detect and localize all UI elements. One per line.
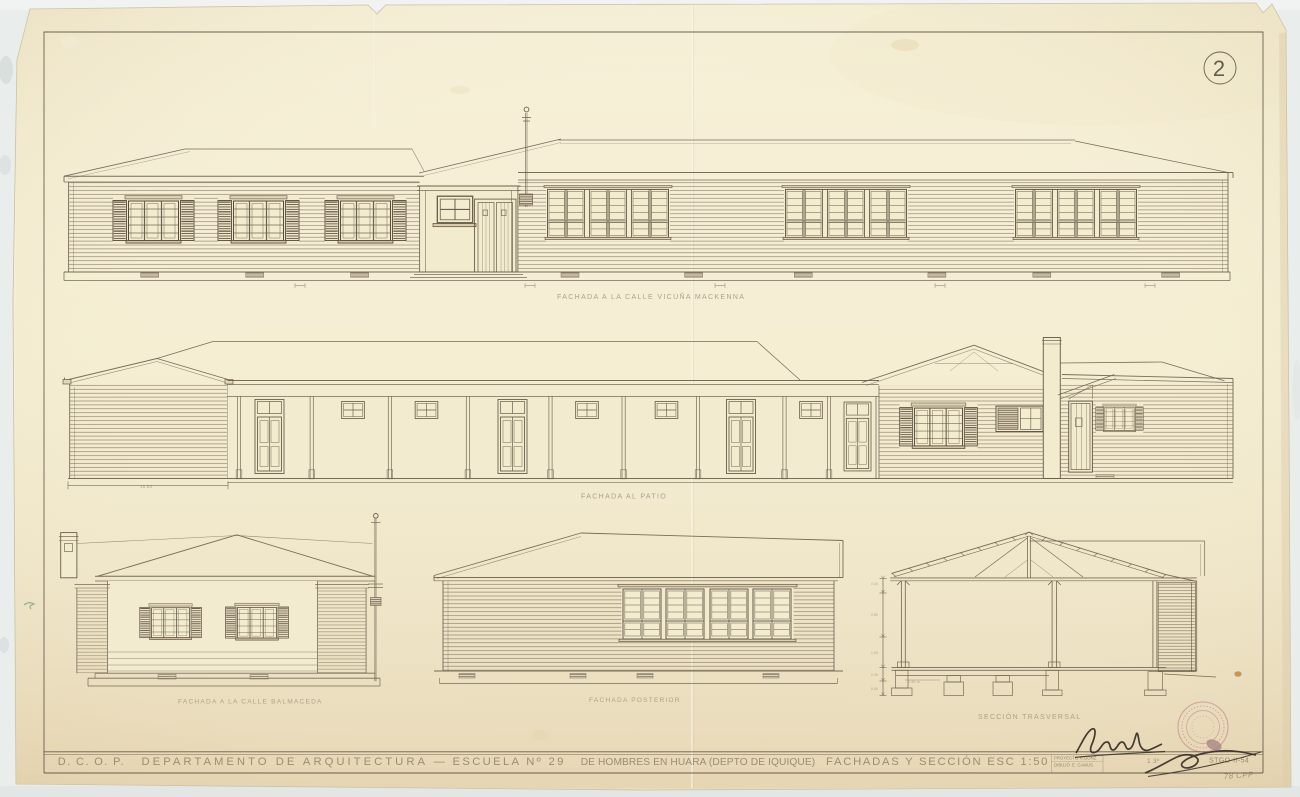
svg-text:1 3º: 1 3º <box>1147 758 1160 765</box>
svg-text:D. C. O. P.: D. C. O. P. <box>58 756 125 768</box>
svg-text:FACHADA A LA CALLE BALMACEDA: FACHADA A LA CALLE BALMACEDA <box>178 699 323 706</box>
svg-text:— ESCUELA Nº 29: — ESCUELA Nº 29 <box>434 756 566 768</box>
svg-text:SECCIÓN TRASVERSAL: SECCIÓN TRASVERSAL <box>978 712 1081 721</box>
svg-text:2.80: 2.80 <box>871 613 878 617</box>
svg-text:15.60: 15.60 <box>140 484 153 489</box>
svg-text:2: 2 <box>1213 56 1225 81</box>
svg-text:DIBUJÓ: DIBUJÓ <box>1054 763 1071 768</box>
svg-text:0.40: 0.40 <box>871 582 878 586</box>
svg-text:FACHADA A LA CALLE VICUÑA MACK: FACHADA A LA CALLE VICUÑA MACKENNA <box>557 292 745 301</box>
svg-text:FACHADA AL PATIO: FACHADA AL PATIO <box>581 494 667 501</box>
svg-text:DE HOMBRES EN HUARA (DEPTO DE: DE HOMBRES EN HUARA (DEPTO DE IQUIQUE) <box>581 757 816 768</box>
svg-text:1.00: 1.00 <box>871 651 878 655</box>
svg-text:FACHADAS Y SECCIÓN ESC 1:50: FACHADAS Y SECCIÓN ESC 1:50 <box>826 755 1049 768</box>
svg-text:DEPARTAMENTO DE ARQUITECTURA: DEPARTAMENTO DE ARQUITECTURA <box>142 756 429 768</box>
svg-text:FACHADA POSTERIOR: FACHADA POSTERIOR <box>589 697 681 704</box>
svg-text:0.60: 0.60 <box>871 687 878 691</box>
svg-text:0.30: 0.30 <box>871 673 878 677</box>
svg-text:E. CAMUS: E. CAMUS <box>1072 763 1093 768</box>
svg-text:0.90 m: 0.90 m <box>908 680 920 684</box>
